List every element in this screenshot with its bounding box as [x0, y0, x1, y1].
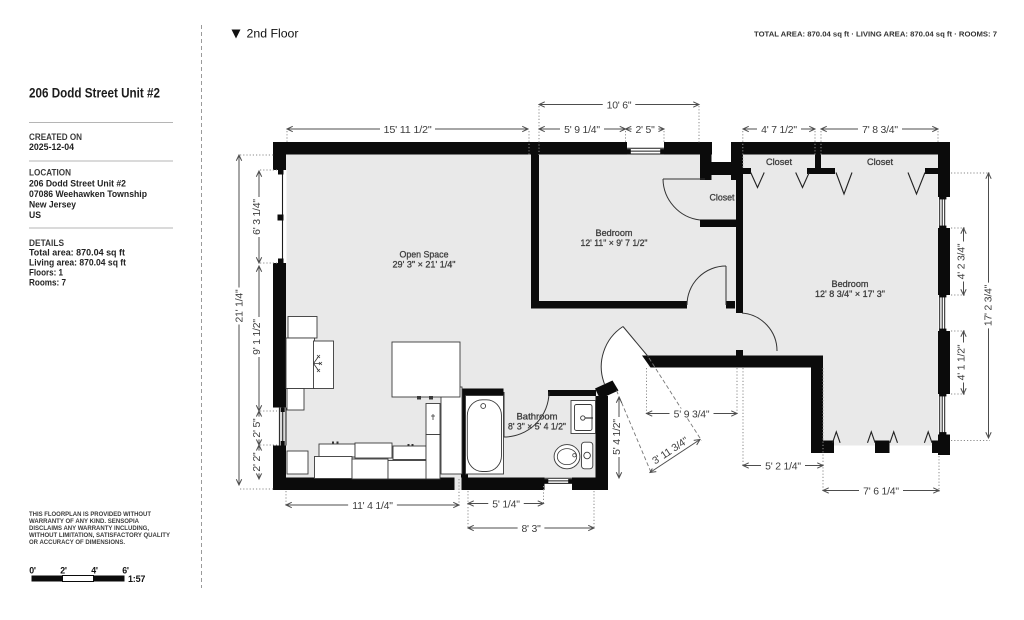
svg-text:10' 6": 10' 6" — [607, 101, 632, 112]
svg-text:0': 0' — [29, 566, 36, 576]
svg-text:New Jersey: New Jersey — [29, 200, 77, 211]
svg-text:Closet: Closet — [710, 192, 735, 203]
svg-text:9' 1 1/2": 9' 1 1/2" — [252, 319, 263, 355]
svg-text:206 Dodd Street Unit #2: 206 Dodd Street Unit #2 — [29, 179, 126, 190]
svg-text:8' 3": 8' 3" — [521, 524, 541, 535]
svg-text:4': 4' — [91, 566, 98, 576]
svg-text:2' 2": 2' 2" — [252, 452, 263, 472]
svg-text:Rooms: 7: Rooms: 7 — [29, 278, 66, 289]
svg-text:2nd Floor: 2nd Floor — [247, 27, 299, 41]
svg-text:17' 2 3/4": 17' 2 3/4" — [984, 284, 995, 326]
svg-text:TOTAL AREA: 870.04 sq ft · LI: TOTAL AREA: 870.04 sq ft · LIVING AREA: … — [754, 30, 997, 39]
svg-text:21' 1/4": 21' 1/4" — [235, 289, 246, 322]
svg-text:US: US — [29, 210, 42, 221]
svg-text:2': 2' — [60, 566, 67, 576]
svg-text:4' 1 1/2": 4' 1 1/2" — [957, 344, 968, 380]
svg-text:2' 5": 2' 5" — [252, 418, 263, 438]
svg-text:7' 8 3/4": 7' 8 3/4" — [862, 125, 898, 136]
svg-text:12' 11" × 9' 7 1/2": 12' 11" × 9' 7 1/2" — [581, 238, 648, 249]
svg-text:1:57: 1:57 — [128, 574, 145, 584]
svg-text:07086 Weehawken Township: 07086 Weehawken Township — [29, 189, 147, 200]
svg-text:THIS FLOORPLAN IS PROVIDED WIT: THIS FLOORPLAN IS PROVIDED WITHOUT — [29, 511, 151, 518]
svg-text:29' 3" × 21' 1/4": 29' 3" × 21' 1/4" — [393, 260, 456, 271]
svg-text:5' 9 1/4": 5' 9 1/4" — [564, 125, 600, 136]
svg-text:8' 3" × 5' 4 1/2": 8' 3" × 5' 4 1/2" — [508, 421, 566, 432]
svg-text:Closet: Closet — [867, 156, 893, 167]
svg-text:WARRANTY OF ANY KIND. SENSOPIA: WARRANTY OF ANY KIND. SENSOPIA — [29, 518, 140, 525]
svg-text:15' 11 1/2": 15' 11 1/2" — [384, 125, 433, 136]
svg-text:5' 9 3/4": 5' 9 3/4" — [674, 410, 710, 421]
svg-text:206 Dodd Street Unit #2: 206 Dodd Street Unit #2 — [29, 86, 160, 101]
svg-text:Closet: Closet — [766, 156, 792, 167]
svg-text:5' 2 1/4": 5' 2 1/4" — [765, 462, 801, 473]
svg-text:12' 8 3/4" × 17' 3": 12' 8 3/4" × 17' 3" — [815, 289, 885, 300]
svg-text:WITHOUT LIMITATION, SATISFACTO: WITHOUT LIMITATION, SATISFACTORY QUALITY — [29, 532, 171, 539]
svg-text:OR ACCURACY OF DIMENSIONS.: OR ACCURACY OF DIMENSIONS. — [29, 539, 125, 546]
svg-text:7' 6 1/4": 7' 6 1/4" — [863, 487, 899, 498]
svg-text:6' 3 1/4": 6' 3 1/4" — [252, 199, 263, 235]
svg-text:2025-12-04: 2025-12-04 — [29, 142, 75, 153]
svg-text:LOCATION: LOCATION — [29, 168, 71, 179]
svg-text:5' 1/4": 5' 1/4" — [492, 500, 520, 511]
svg-text:DISCLAIMS ANY WARRANTY INCLUDI: DISCLAIMS ANY WARRANTY INCLUDING, — [29, 525, 149, 532]
svg-text:5' 4 1/2": 5' 4 1/2" — [612, 419, 623, 455]
svg-text:11' 4 1/4": 11' 4 1/4" — [352, 501, 393, 512]
svg-text:4' 2 3/4": 4' 2 3/4" — [957, 243, 968, 279]
svg-text:4' 7 1/2": 4' 7 1/2" — [761, 125, 797, 136]
svg-text:2' 5": 2' 5" — [635, 125, 655, 136]
